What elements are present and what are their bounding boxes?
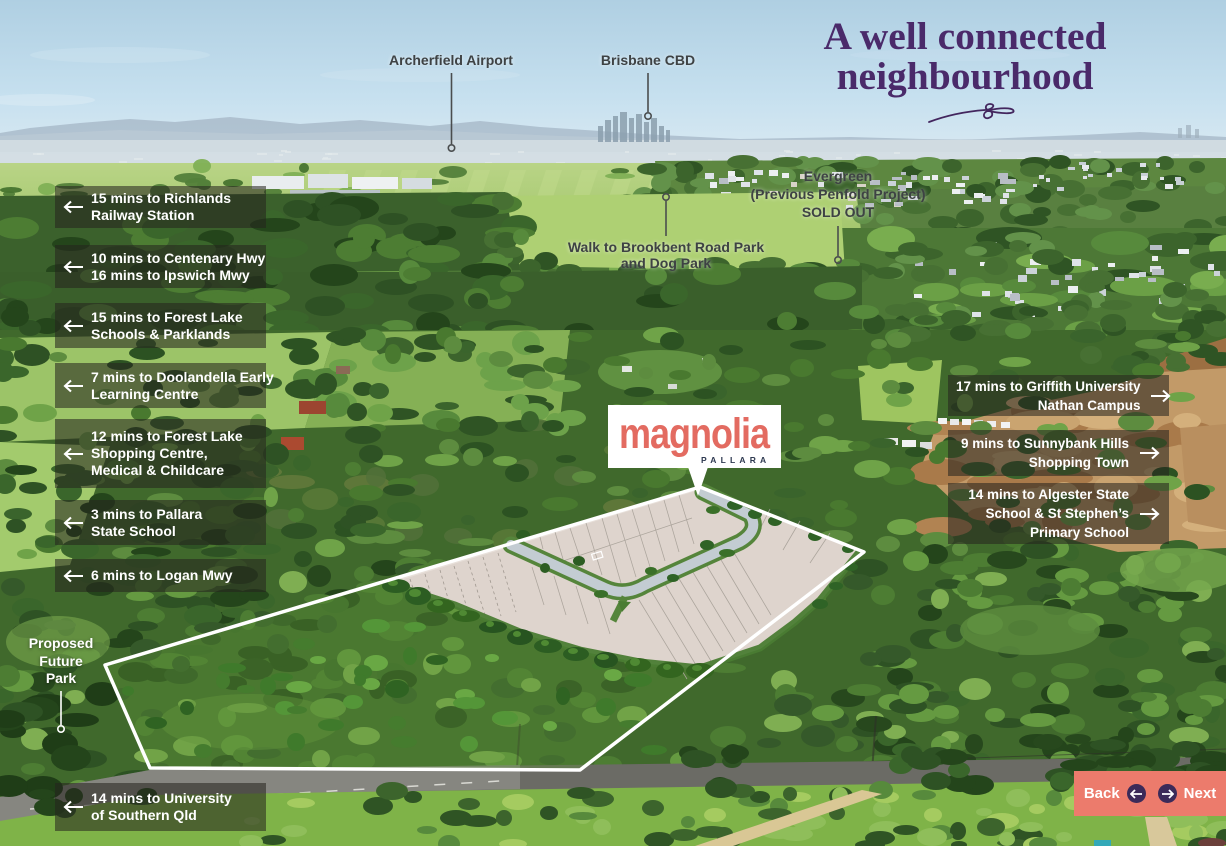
svg-text:magnolia: magnolia [619,410,771,457]
svg-text:PALLARA: PALLARA [701,455,770,465]
